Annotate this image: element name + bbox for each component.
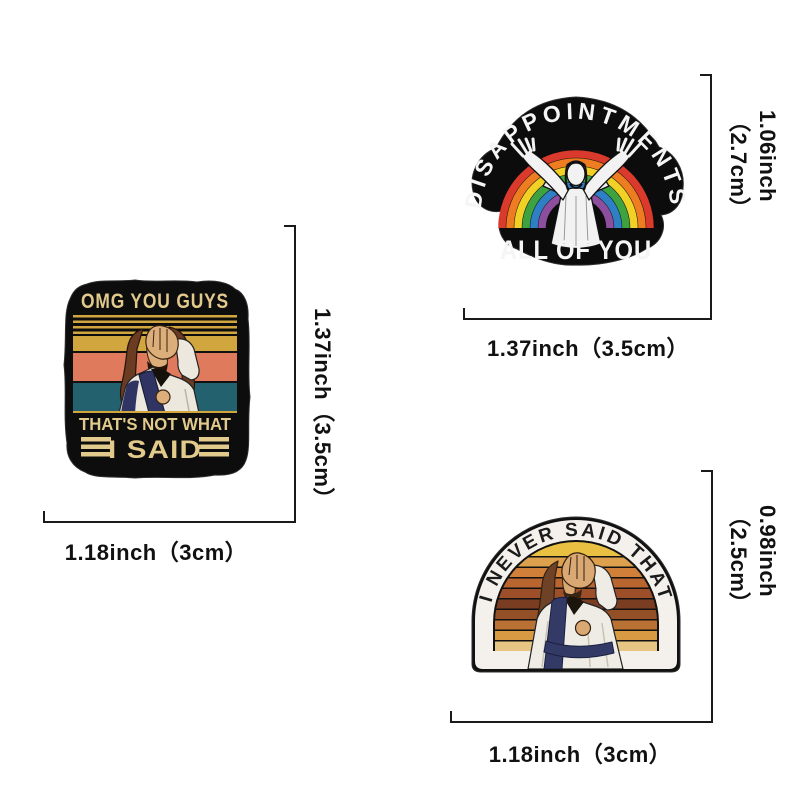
i-never-said-that-pin: I NEVER SAID THAT [468, 501, 685, 675]
disappointments-height-label: 1.06inch（2.7cm） [722, 110, 780, 300]
omg-height-line-cap [284, 225, 296, 227]
omg-width-line [43, 521, 296, 523]
never-said-width-line-cap [450, 711, 452, 723]
pin-text-line1: OMG YOU GUYS [81, 290, 229, 313]
omg-width-line-cap [43, 511, 45, 523]
product-image: OMG YOU GUYS [0, 0, 800, 800]
disappointments-height-line-cap [700, 74, 712, 76]
pin-text-line2: THAT'S NOT WHAT [79, 414, 231, 434]
triple-bars-left [81, 437, 111, 457]
omg-width-label: 1.18inch（3cm） [36, 535, 276, 567]
never-said-height-line-cap [701, 470, 713, 472]
omg-height-label: 1.37inch（3.5cm） [306, 308, 338, 508]
disappointments-width-line [463, 318, 712, 320]
disappointments-width-label: 1.37inch（3.5cm） [468, 331, 708, 363]
omg-height-line [294, 225, 296, 523]
never-said-height-line [711, 470, 713, 723]
never-said-width-label: 1.18inch（3cm） [460, 737, 700, 769]
pin-text-line3: I SAID [108, 436, 202, 464]
triple-bars-right [199, 437, 229, 457]
disappointments-pin: DISAPPOINTMENTS ALL OF YOU [465, 96, 687, 268]
omg-you-guys-pin: OMG YOU GUYS [57, 277, 253, 479]
pin-bottom-text: ALL OF YOU [500, 235, 652, 265]
never-said-width-line [450, 721, 713, 723]
never-said-height-label: 0.98inch（2.5cm） [722, 505, 780, 695]
disappointments-width-line-cap [463, 308, 465, 320]
disappointments-height-line [710, 74, 712, 320]
